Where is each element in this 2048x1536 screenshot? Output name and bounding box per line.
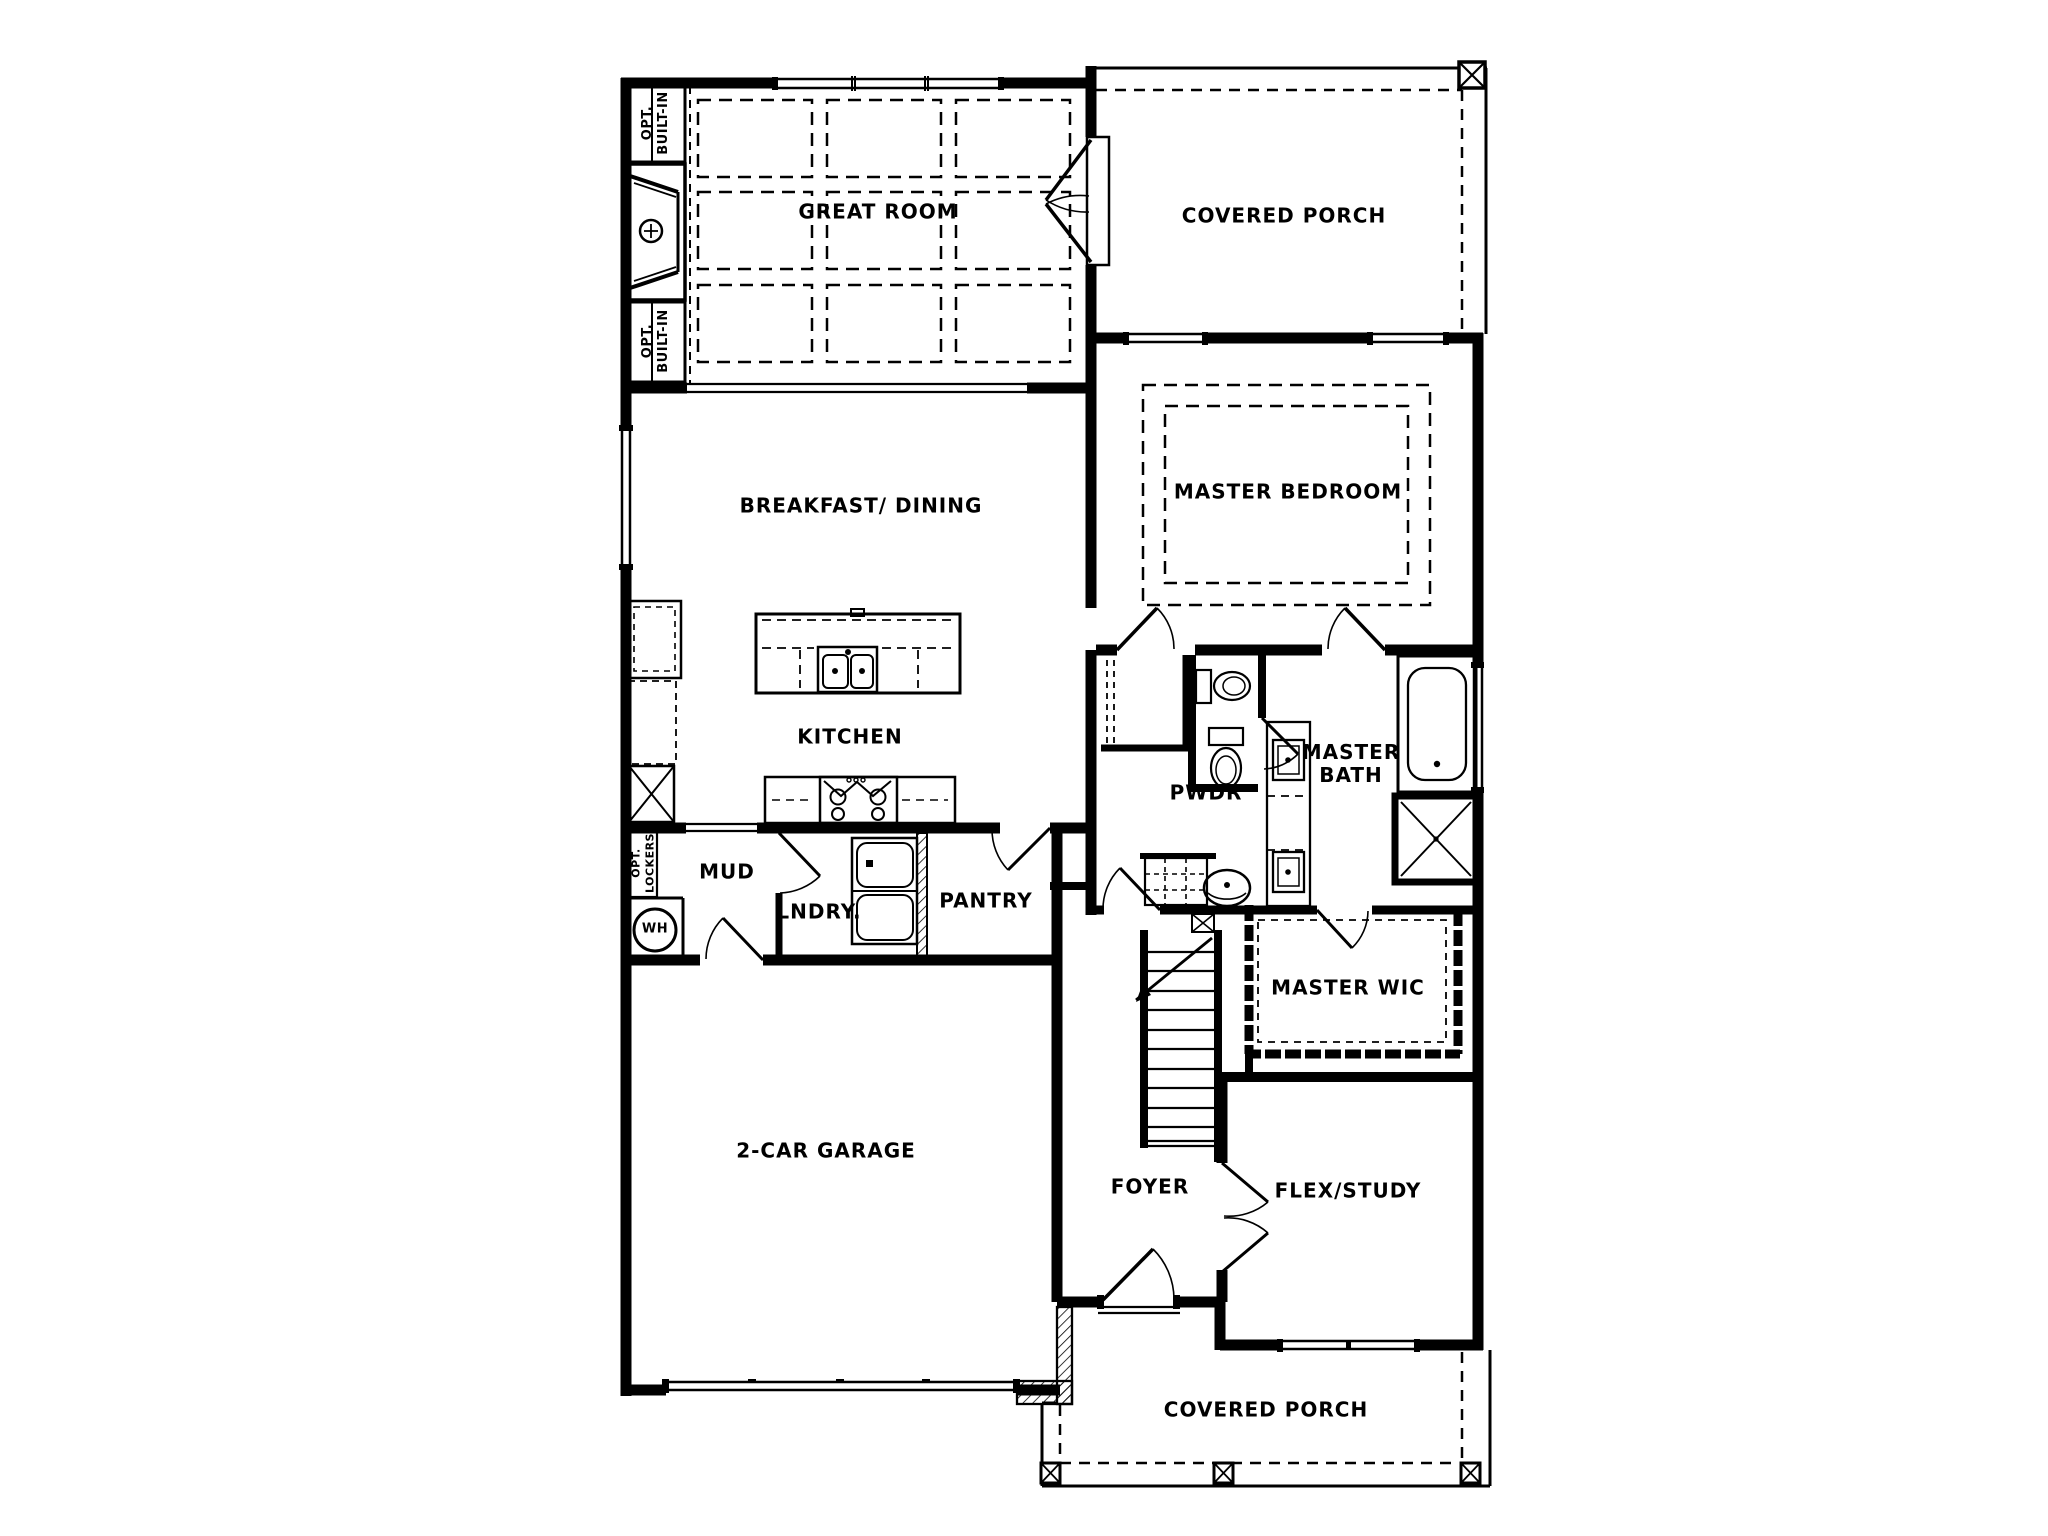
floor-plan-sheet: GREAT ROOM COVERED PORCH MASTER BEDROOM … bbox=[0, 0, 2048, 1536]
room-label-laundry: LNDRY. bbox=[776, 901, 861, 924]
upper-porch-outline bbox=[1096, 62, 1487, 334]
bathtub-icon bbox=[1398, 656, 1476, 792]
great-room-triple-window bbox=[772, 75, 1004, 91]
washer-dryer-icon bbox=[852, 838, 917, 944]
flex-study-window bbox=[1277, 1337, 1420, 1353]
cased-openings bbox=[686, 384, 1027, 831]
shower-icon bbox=[1395, 796, 1477, 882]
garage-door bbox=[662, 1379, 1020, 1393]
room-label-flex-study: FLEX/STUDY bbox=[1275, 1180, 1422, 1203]
garage-porch-hatched-walls bbox=[1017, 1307, 1072, 1404]
room-label-kitchen: KITCHEN bbox=[797, 726, 902, 749]
annotation-water-heater: WH bbox=[642, 923, 668, 938]
powder-toilet-icon bbox=[1209, 728, 1243, 788]
room-label-great-room: GREAT ROOM bbox=[798, 201, 957, 224]
range-counter bbox=[765, 777, 955, 823]
great-room-coffered-ceiling bbox=[698, 100, 1070, 362]
flex-study-double-doors bbox=[1222, 1163, 1268, 1272]
wc-toilet-icon bbox=[1196, 670, 1250, 703]
refrigerator-icon bbox=[628, 601, 681, 678]
powder-sink-icon bbox=[1204, 870, 1250, 906]
vanity-sink-icons bbox=[1273, 740, 1304, 892]
annotation-opt-lockers: OPT. LOCKERS bbox=[629, 833, 657, 893]
stairs bbox=[1136, 930, 1218, 1162]
room-label-covered-porch-upper: COVERED PORCH bbox=[1182, 205, 1386, 228]
porch-columns bbox=[1041, 1463, 1480, 1483]
floor-plan-drawing bbox=[0, 0, 2048, 1536]
room-label-mud: MUD bbox=[699, 861, 755, 884]
annotation-opt-built-in-upper: OPT. BUILT-IN bbox=[640, 91, 673, 155]
master-bath-window bbox=[1470, 662, 1486, 793]
great-room-french-door bbox=[1046, 137, 1109, 265]
room-label-master-wic: MASTER WIC bbox=[1271, 977, 1425, 1000]
breakfast-window bbox=[618, 425, 634, 570]
room-label-breakfast-dining: BREAKFAST/ DINING bbox=[740, 495, 983, 518]
room-label-covered-porch-lower: COVERED PORCH bbox=[1164, 1399, 1368, 1422]
room-label-master-bedroom: MASTER BEDROOM bbox=[1174, 481, 1402, 504]
range-icon bbox=[820, 777, 897, 823]
annotation-opt-built-in-lower: OPT. BUILT-IN bbox=[640, 309, 673, 373]
room-label-garage: 2-CAR GARAGE bbox=[736, 1140, 916, 1163]
fireplace-icon bbox=[623, 164, 685, 300]
room-label-master-bath: MASTER BATH bbox=[1302, 741, 1401, 787]
linen-closet bbox=[1101, 655, 1188, 748]
powder-room bbox=[1204, 728, 1250, 906]
island-sink-icon bbox=[818, 647, 877, 692]
room-label-powder: PWDR bbox=[1170, 782, 1243, 805]
left-wall-counter bbox=[628, 681, 676, 822]
room-label-pantry: PANTRY bbox=[939, 890, 1032, 913]
room-label-foyer: FOYER bbox=[1111, 1176, 1190, 1199]
front-door bbox=[1097, 1249, 1180, 1313]
master-bedroom-doors bbox=[1096, 608, 1478, 650]
kitchen-island bbox=[756, 609, 960, 693]
